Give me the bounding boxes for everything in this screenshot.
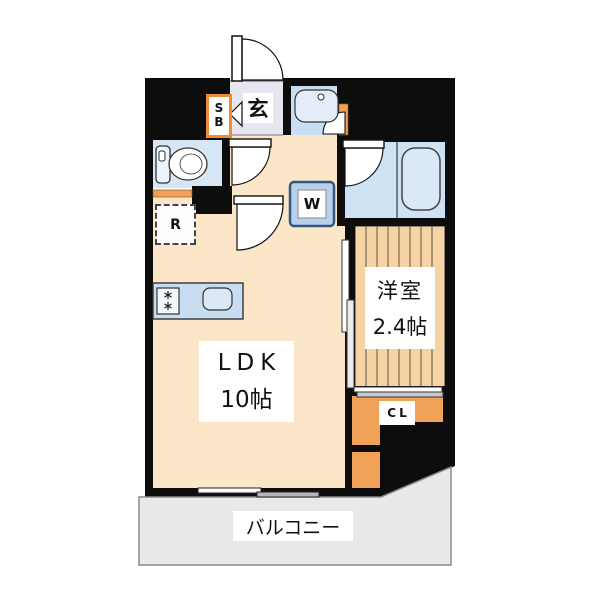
kitchen-counter bbox=[153, 283, 243, 319]
toilet-icon bbox=[156, 146, 207, 183]
partition-panel-2 bbox=[347, 300, 354, 388]
ldk-door-leaf bbox=[234, 196, 283, 204]
ldk-name: LDK bbox=[212, 350, 282, 376]
shoe-box-label: S B bbox=[206, 94, 232, 138]
bath-door-leaf bbox=[343, 140, 384, 148]
western-room-size: 2.4帖 bbox=[373, 311, 427, 341]
washbasin-icon bbox=[295, 90, 338, 122]
wall-below-toilet bbox=[192, 186, 232, 214]
wall-left bbox=[145, 140, 153, 497]
western-room-name: 洋室 bbox=[377, 275, 423, 305]
kitchen-sink-icon bbox=[203, 288, 232, 310]
wall-top-right bbox=[345, 78, 455, 142]
balcony-window-panel-2 bbox=[257, 492, 319, 497]
closet-area-lower bbox=[352, 452, 380, 488]
western-room-label: 洋室 2.4帖 bbox=[365, 267, 435, 349]
wall-entrance-washroom bbox=[283, 78, 291, 135]
wall-bath-bottom bbox=[337, 218, 455, 226]
balcony-window-panel-1 bbox=[198, 488, 261, 493]
wall-bath-left bbox=[337, 142, 345, 226]
floor-plan: 玄 S B R W CL LDK 10帖 洋室 2.4帖 バルコニー bbox=[0, 0, 600, 600]
wall-washroom-top bbox=[283, 78, 345, 86]
floor-plan-drawing bbox=[0, 0, 600, 600]
washer-label: W bbox=[297, 189, 327, 219]
wall-right bbox=[445, 142, 455, 396]
balcony-label: バルコニー bbox=[233, 511, 353, 541]
closet-door-panel-1 bbox=[354, 387, 442, 392]
entrance-door-swing bbox=[242, 39, 283, 80]
closet-label: CL bbox=[379, 401, 415, 425]
closet-area-left bbox=[352, 396, 380, 445]
hall-door-leaf bbox=[229, 139, 271, 147]
entrance-label: 玄 bbox=[243, 93, 273, 123]
ldk-size: 10帖 bbox=[220, 380, 272, 414]
refrigerator-label: R bbox=[155, 204, 196, 245]
ldk-room-label: LDK 10帖 bbox=[199, 341, 294, 422]
entrance-door-leaf bbox=[232, 36, 242, 81]
closet-door-panel-2 bbox=[357, 392, 443, 397]
toilet-counter-strip bbox=[153, 190, 192, 197]
